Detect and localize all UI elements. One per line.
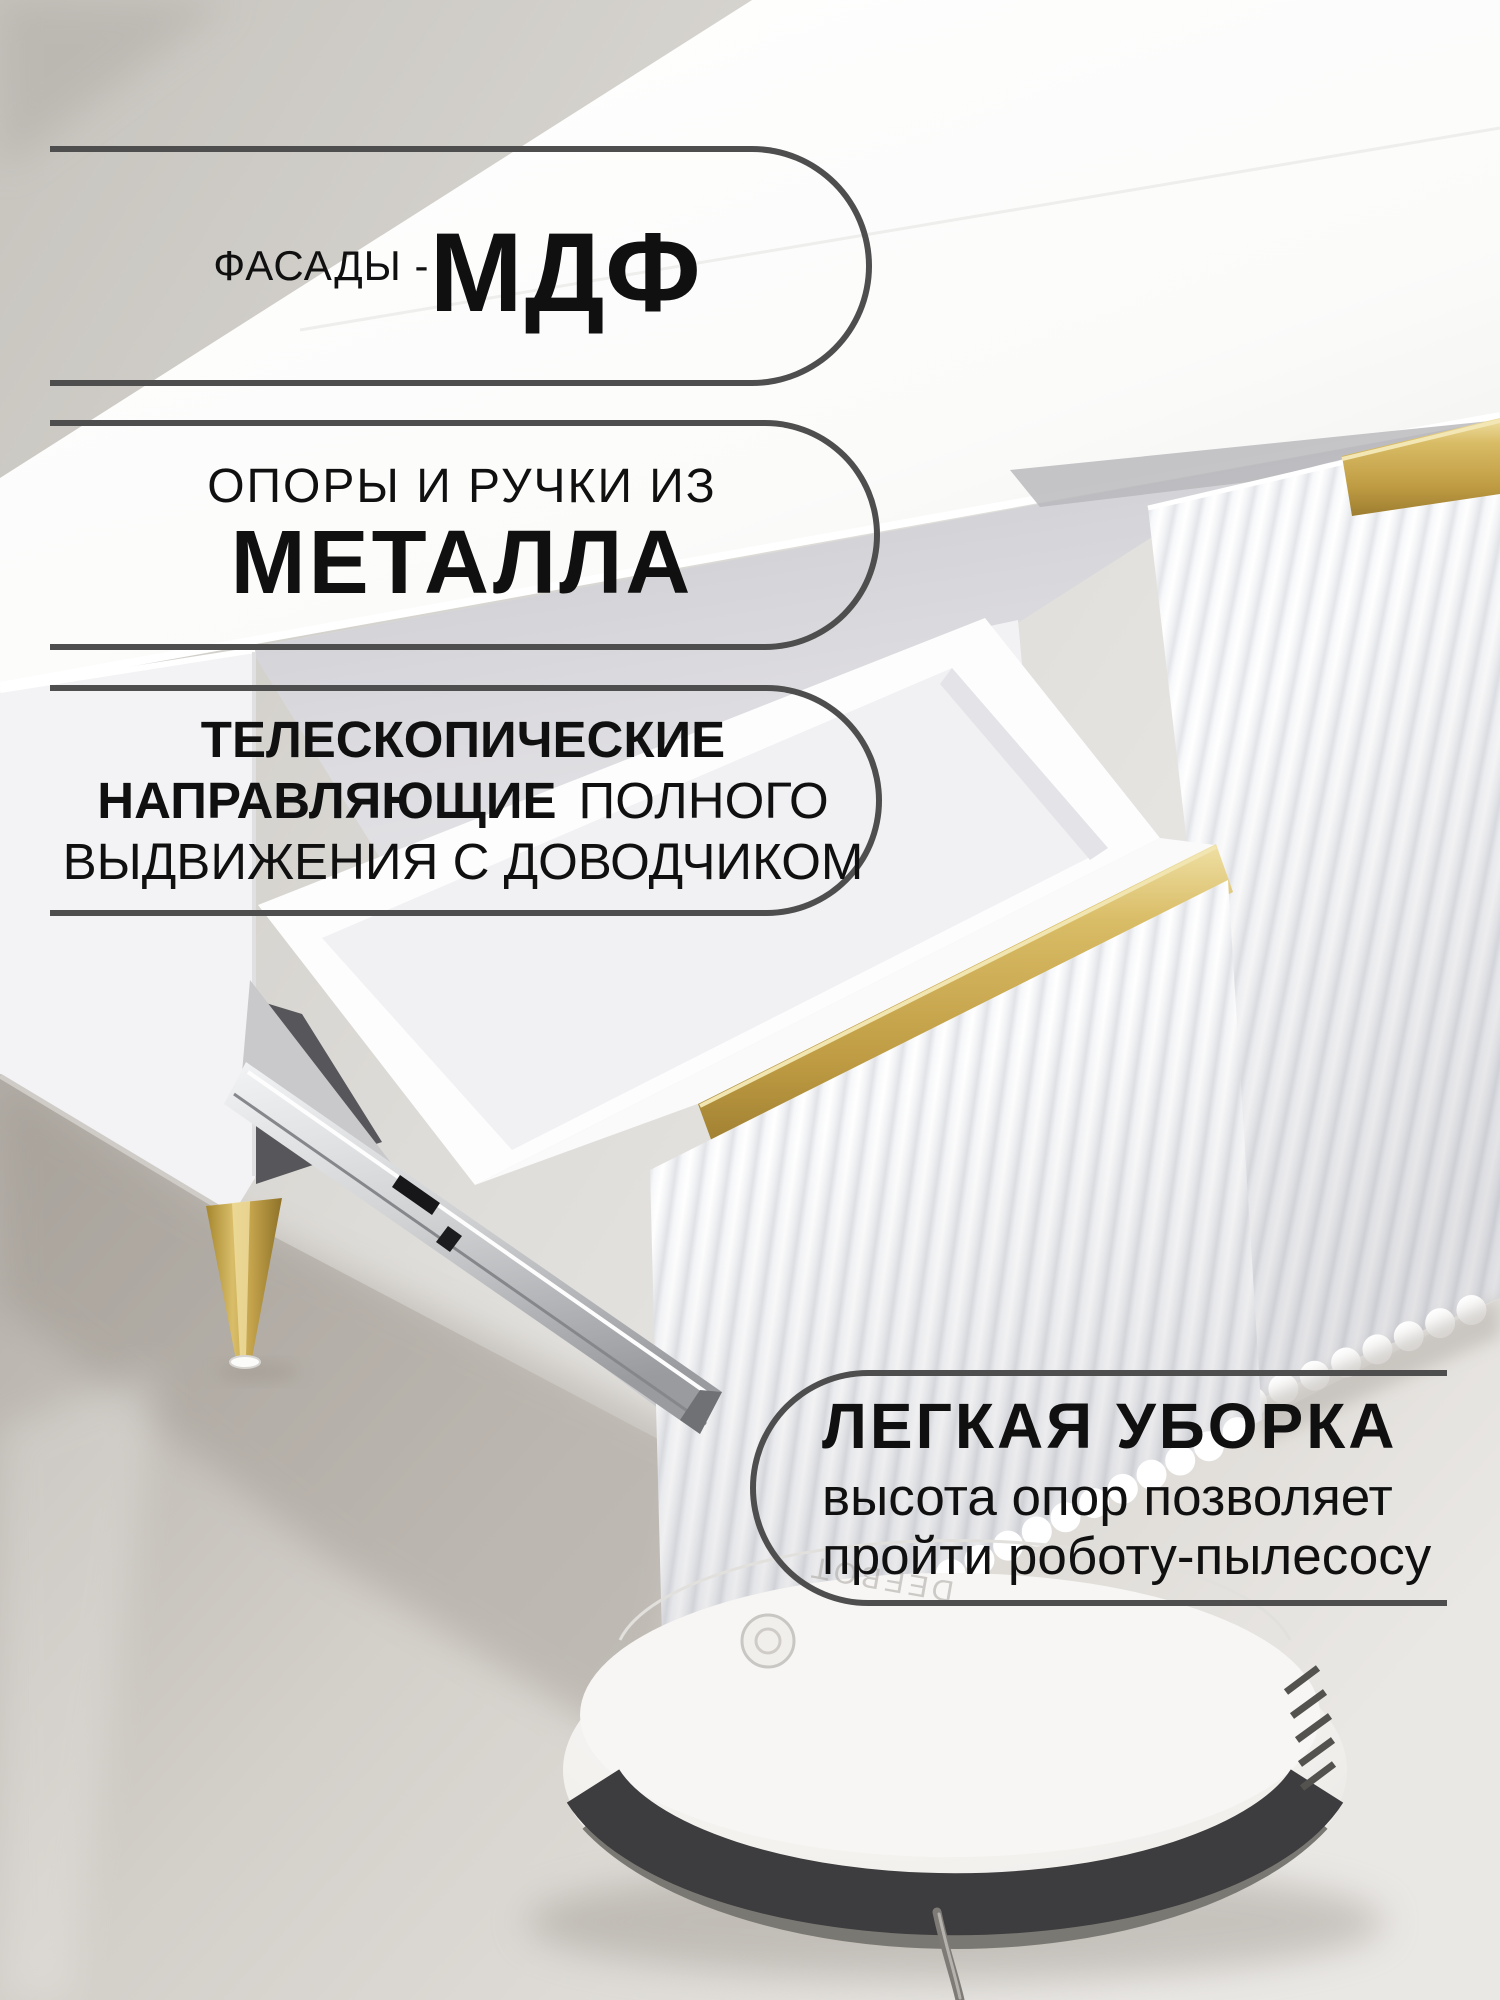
callout-slides-row3: ВЫДВИЖЕНИЯ С ДОВОДЧИКОМ <box>63 831 864 892</box>
robot-power-button <box>742 1615 794 1667</box>
callout-slides: ТЕЛЕСКОПИЧЕСКИЕ НАПРАВЛЯЮЩИЕПОЛНОГО ВЫДВ… <box>50 685 882 916</box>
leg-foot <box>230 1356 260 1368</box>
callout-slides-row1: ТЕЛЕСКОПИЧЕСКИЕ <box>201 709 725 770</box>
callout-easy-cleaning: ЛЕГКАЯ УБОРКА высота опор позволяет прой… <box>750 1370 1447 1606</box>
callout-cleaning-title: ЛЕГКАЯ УБОРКА <box>822 1390 1447 1462</box>
callout-cleaning-line1: высота опор позволяет <box>822 1468 1447 1527</box>
callout-slides-row2: НАПРАВЛЯЮЩИЕПОЛНОГО <box>97 770 828 831</box>
callout-metal-line2: МЕТАЛЛА <box>231 515 694 611</box>
callout-slides-row2-regular: ПОЛНОГО <box>579 772 829 829</box>
callout-facades-value: МДФ <box>430 208 703 337</box>
callout-facades: ФАСАДЫ - МДФ <box>50 146 872 386</box>
callout-metal-line1: ОПОРЫ И РУЧКИ ИЗ <box>207 459 717 515</box>
callout-slides-row2-bold: НАПРАВЛЯЮЩИЕ <box>97 772 556 829</box>
callout-metal: ОПОРЫ И РУЧКИ ИЗ МЕТАЛЛА <box>50 420 880 650</box>
callout-cleaning-line2: пройти роботу-пылесосу <box>822 1527 1447 1586</box>
product-infographic: DEEBOT ФАСАДЫ - МДФ ОПОРЫ И РУЧКИ ИЗ МЕТ… <box>0 0 1500 2000</box>
callout-facades-label: ФАСАДЫ - <box>213 242 429 290</box>
robot-dome <box>580 1573 1320 1857</box>
